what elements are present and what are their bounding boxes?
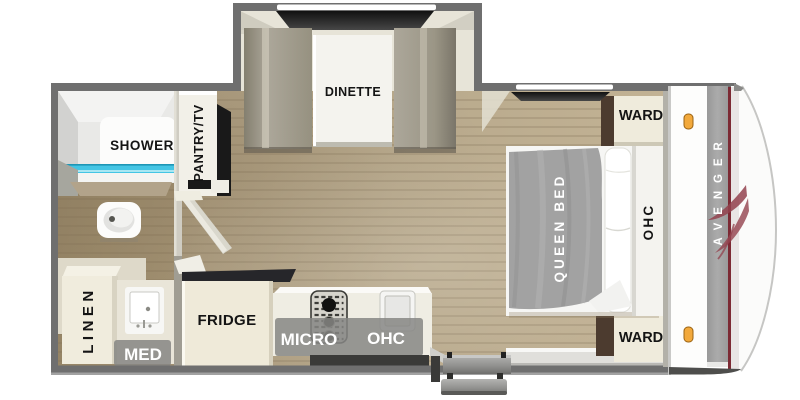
svg-text:OHC: OHC [367,329,405,348]
svg-text:DINETTE: DINETTE [325,85,381,99]
svg-text:MICRO: MICRO [281,330,338,349]
svg-text:QUEEN BED: QUEEN BED [552,173,567,282]
svg-text:OHC: OHC [641,204,656,241]
svg-text:MED: MED [124,345,162,364]
svg-text:PANTRY/TV: PANTRY/TV [191,104,206,182]
svg-text:FRIDGE: FRIDGE [197,312,256,329]
svg-text:WARD: WARD [619,108,663,124]
svg-text:WARD: WARD [619,330,663,346]
svg-text:SHOWER: SHOWER [110,138,174,153]
svg-text:AVENGER: AVENGER [713,134,725,245]
svg-text:LINEN: LINEN [80,286,97,354]
